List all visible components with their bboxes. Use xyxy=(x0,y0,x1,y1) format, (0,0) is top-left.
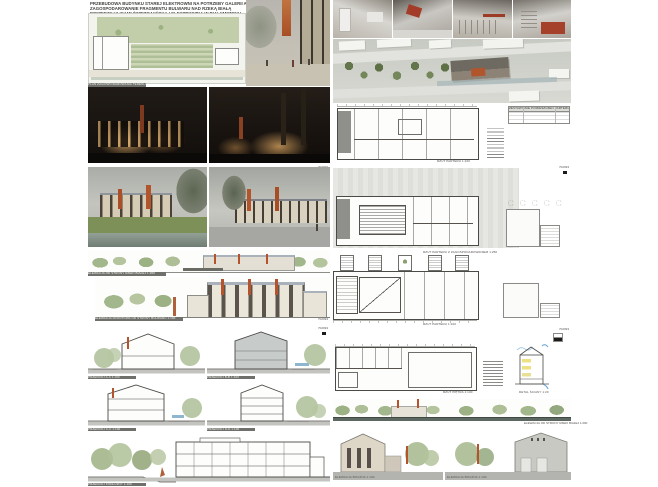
table-column-divider xyxy=(523,107,524,123)
render-courtyard-tree xyxy=(246,6,280,58)
floor-plan-level xyxy=(333,271,479,320)
render-interior-4 xyxy=(513,0,571,38)
floor-plan-with-site xyxy=(336,196,479,246)
aerial-power-plant-building xyxy=(450,57,509,81)
render-street-person xyxy=(316,224,318,231)
render-courtyard xyxy=(246,0,330,86)
plan-upper-caption: RZUT PIĘTRA 1:100 xyxy=(443,391,472,395)
plan-legend-table xyxy=(540,303,560,318)
plan-dark-room xyxy=(338,111,351,153)
site-plan-boulevard-strip xyxy=(89,70,245,77)
room-list xyxy=(487,126,504,158)
entry-number: 702093 xyxy=(539,328,569,332)
render-river-grass xyxy=(88,217,207,233)
render-interior-1 xyxy=(333,0,392,38)
section-a-drawing xyxy=(88,329,205,375)
section-b-drawing xyxy=(207,329,330,375)
interior-red-canopy xyxy=(406,4,422,18)
plan-auditorium-seats xyxy=(359,205,406,235)
wall-section-detail xyxy=(515,342,549,389)
legend-dot-icon xyxy=(563,171,567,174)
detail-square xyxy=(340,255,354,271)
aerial-massing-block xyxy=(483,39,523,49)
site-plan-building-wall xyxy=(102,37,103,69)
plan-tree-row xyxy=(506,198,566,208)
elevation-main-annex-right xyxy=(303,291,327,318)
render-night-banner xyxy=(140,105,144,133)
render-night-foreground xyxy=(209,154,330,163)
render-interior-3 xyxy=(453,0,512,38)
riverside-chimney xyxy=(397,400,399,408)
room-list xyxy=(483,360,503,386)
render-courtyard-plaza xyxy=(246,64,330,86)
aerial-orange-wall xyxy=(471,68,486,77)
render-night-chimney xyxy=(301,89,306,145)
section-long-drawing xyxy=(88,433,330,483)
interior-red-band xyxy=(483,14,505,17)
floor-plan-ground-caption: RZUT PARTERU 1:100 xyxy=(437,160,470,164)
section-b-caption: PRZEKRÓJ B-B 1:100 xyxy=(207,376,231,379)
render-night-banner xyxy=(239,117,243,139)
render-river-banner xyxy=(118,189,122,209)
detail-square xyxy=(398,255,412,271)
render-street-road xyxy=(209,227,330,247)
plan-room xyxy=(338,372,358,388)
render-street-tree xyxy=(221,173,247,217)
competition-boards-sheet: PRZEBUDOWA BUDYNKU STAREJ ELEKTROWNI NA … xyxy=(0,0,658,487)
table-rows xyxy=(509,111,569,123)
render-night-foreground xyxy=(88,153,207,163)
board-r3: 702093 RZUT PIĘTRA 1:100 xyxy=(333,327,571,487)
elevation-main-annex-left xyxy=(187,295,209,318)
floor-plan-upper xyxy=(335,347,477,391)
plan-hall-with-diagonal xyxy=(359,277,401,313)
board-l3: 702093 xyxy=(88,327,330,487)
elevation-main-banner xyxy=(221,279,224,295)
elevation-bottom-left: ELEWACJA BOCZNA 1:100 xyxy=(333,428,443,480)
plan-dark-room xyxy=(337,199,350,239)
plan-stair-core xyxy=(398,119,422,135)
detail-square xyxy=(428,255,442,271)
plan-partitions xyxy=(413,197,473,245)
aerial-massing-block xyxy=(429,39,451,48)
section-long-caption: PRZEKRÓJ PODŁUŻNY 1:100 xyxy=(88,483,117,486)
render-river-banner xyxy=(146,185,151,209)
board-r1: 702093 xyxy=(333,0,571,163)
site-plan-main-building xyxy=(93,36,129,70)
detail-square xyxy=(455,255,469,271)
render-street-banner xyxy=(275,187,279,211)
render-river-view xyxy=(88,167,207,247)
site-plan-annex-building xyxy=(215,48,239,65)
interior-wall xyxy=(367,12,383,22)
plan-corridor-wall xyxy=(413,223,473,224)
elevation-bottom-left-caption: ELEWACJA BOCZNA 1:100 xyxy=(335,476,375,480)
render-river-water xyxy=(88,233,207,247)
plan-small-rooms-band xyxy=(336,348,402,369)
table-column-divider xyxy=(555,107,556,123)
room-schedule-table: ZESTAWIENIE POMIESZCZEŃ PARTERU xyxy=(508,106,570,124)
riverside-water xyxy=(333,417,571,421)
site-plan-river xyxy=(91,77,243,80)
plan-partitions xyxy=(404,272,470,319)
table-title: ZESTAWIENIE POMIESZCZEŃ PARTERU xyxy=(509,107,539,111)
interior-red-wall xyxy=(541,22,565,34)
render-street-banner xyxy=(247,189,251,211)
render-night-chimneys xyxy=(209,87,330,163)
elevation-bottom-right-caption: ELEWACJA BOCZNA 1:100 xyxy=(447,476,487,480)
elevation-bottom-right: ELEWACJA BOCZNA 1:100 xyxy=(445,428,571,480)
elevation-band-caption-bar: ELEWACJA OD STRONY RZEKI BIAŁEJ 1:200 xyxy=(88,272,166,276)
render-night-chimney xyxy=(281,93,286,145)
render-courtyard-orange-banner xyxy=(282,0,291,36)
interior-column xyxy=(339,8,351,32)
section-d-caption-bar: PRZEKRÓJ D-D 1:100 xyxy=(207,428,255,431)
board-l2: 702093 xyxy=(88,165,330,325)
board-r2: 702093 RZUT PARTERU Z ZAGOSPODAROWANIEM … xyxy=(333,165,571,325)
elevation-main-caption: ELEWACJA FRONTOWA OD STRONY BULWARU 1:10… xyxy=(95,317,139,321)
render-river-facade xyxy=(100,193,172,219)
render-street-view xyxy=(209,167,330,247)
aerial-massing-block xyxy=(509,90,539,101)
entry-number: 702093 xyxy=(539,166,569,170)
plan1-caption: RZUT PARTERU Z ZAGOSPODAROWANIEM 1:250 xyxy=(423,251,497,255)
site-plan-hedge-rows xyxy=(131,44,213,68)
entry-number: 702093 xyxy=(298,318,328,322)
interior-stair-rail xyxy=(521,8,537,28)
plan-corridor-wall xyxy=(354,139,474,140)
elevation-band-banner xyxy=(238,254,240,264)
elevation-riverside-drawing xyxy=(333,399,571,421)
render-courtyard-person xyxy=(266,60,268,66)
board-l1: PRZEBUDOWA BUDYNKU STAREJ ELEKTROWNI NA … xyxy=(88,0,330,163)
render-aerial xyxy=(333,39,571,103)
section-d-drawing xyxy=(207,381,330,427)
interior-floor xyxy=(393,30,452,38)
plan-room-block xyxy=(336,276,358,314)
aerial-massing-block xyxy=(339,40,365,50)
plan-open-hall xyxy=(408,352,472,388)
section-c-caption-bar: PRZEKRÓJ C-C 1:100 xyxy=(88,428,136,431)
render-courtyard-facade xyxy=(300,0,330,66)
elevation-riverside-caption: ELEWACJA OD STRONY RZEKI BIAŁEJ 1:200 xyxy=(524,422,569,426)
elevation-main-sculpture xyxy=(173,297,176,316)
elevation-band-barge xyxy=(183,268,223,271)
wall-detail-caption: DETAL ŚCIANY 1:20 xyxy=(519,391,549,395)
elevation-main-drawing xyxy=(95,277,330,318)
render-courtyard-person xyxy=(292,60,294,67)
site-plan-drawing xyxy=(88,13,246,84)
elevation-band-drawing xyxy=(88,250,330,273)
section-d-caption: PRZEKRÓJ D-D 1:100 xyxy=(207,428,231,431)
render-interior-2 xyxy=(393,0,452,38)
section-a-caption-bar: PRZEKRÓJ A-A 1:100 xyxy=(88,376,136,379)
riverside-chimney xyxy=(417,399,419,408)
plan2-caption: RZUT PARTERU 1:100 xyxy=(423,323,456,327)
site-plan-caption: PLAN ZAGOSPODAROWANIA TERENU 1:500 xyxy=(88,83,117,87)
plan-dimension-ticks xyxy=(337,104,477,107)
section-long-caption-bar: PRZEKRÓJ PODŁUŻNY 1:100 xyxy=(88,483,146,486)
render-night-arcade xyxy=(88,87,207,163)
elevation-main-banner xyxy=(248,279,251,295)
elevation-main-caption-bar: ELEWACJA FRONTOWA OD STRONY BULWARU 1:10… xyxy=(95,317,183,321)
floor-plan-ground xyxy=(337,108,479,160)
elevation-main-banner xyxy=(275,279,278,295)
section-c-drawing xyxy=(88,381,205,427)
plan-building-footprint xyxy=(503,283,539,318)
plan-building-footprint xyxy=(506,209,540,247)
legend-box-icon xyxy=(553,333,563,342)
section-c-caption: PRZEKRÓJ C-C 1:100 xyxy=(88,428,112,431)
elevation-band-banner xyxy=(214,254,216,264)
section-a-caption: PRZEKRÓJ A-A 1:100 xyxy=(88,376,112,379)
plan-legend-table xyxy=(540,225,560,247)
section-b-caption-bar: PRZEKRÓJ B-B 1:100 xyxy=(207,376,255,379)
render-courtyard-person xyxy=(308,59,310,65)
aerial-massing-block xyxy=(377,39,411,48)
detail-square xyxy=(368,255,382,271)
interior-stairs xyxy=(459,20,499,34)
elevation-band-caption: ELEWACJA OD STRONY RZEKI BIAŁEJ 1:200 xyxy=(88,272,127,276)
elevation-band-banner xyxy=(266,254,268,264)
